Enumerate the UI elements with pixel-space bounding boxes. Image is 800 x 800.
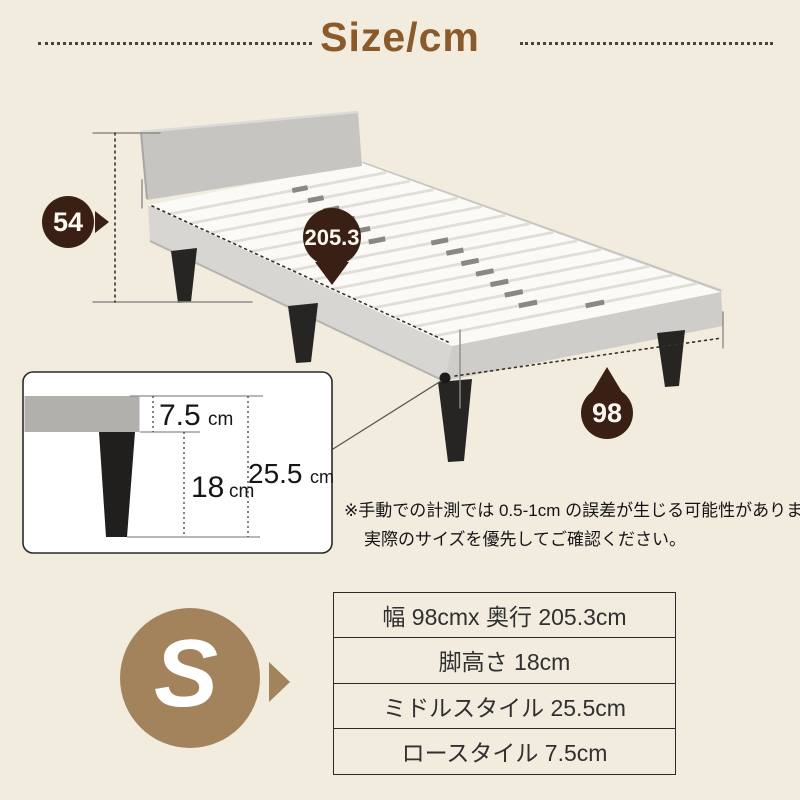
low-style-value: 7.5 xyxy=(159,399,201,432)
middle-style-value: 25.5 xyxy=(248,458,303,489)
badge-headboard-height: 54 xyxy=(42,196,109,248)
spec-row-low: ロースタイル 7.5cm xyxy=(334,729,675,774)
spec-row-size: 幅 98cmx 奥行 205.3cm xyxy=(334,593,675,638)
leg-callout-line xyxy=(333,381,441,449)
middle-style-unit: cm xyxy=(310,467,334,487)
size-badge-letter: S xyxy=(154,626,218,722)
note-line-1: ※手動での計測では 0.5-1cm の誤差が生じる可能性があります。 xyxy=(344,496,794,525)
width-value: 98 xyxy=(592,398,622,428)
size-badge-arrow-icon xyxy=(269,662,290,702)
spec-row-leg: 脚高さ 18cm xyxy=(334,638,675,683)
headboard-height-value: 54 xyxy=(53,207,83,237)
inset-frame-bar xyxy=(25,396,140,432)
arrow-right-icon xyxy=(95,211,109,233)
badge-width: 98 xyxy=(581,367,633,439)
bed-leg-foot-front xyxy=(438,379,472,462)
leg-detail-inset: 7.5 cm 18 cm 25.5 cm xyxy=(23,372,334,553)
leg-height-value: 18 xyxy=(191,471,224,504)
measurement-note: ※手動での計測では 0.5-1cm の誤差が生じる可能性があります。 実際のサイ… xyxy=(344,496,794,554)
size-badge: S xyxy=(120,608,260,748)
spec-row-middle: ミドルスタイル 25.5cm xyxy=(334,684,675,729)
size-infographic-page: Size/cm xyxy=(0,0,800,800)
leg-callout-dot xyxy=(440,373,451,384)
bed-leg-head-front xyxy=(171,248,197,303)
length-value: 205.3 xyxy=(304,225,359,250)
bed-leg-mid-front xyxy=(288,303,318,363)
note-line-2: 実際のサイズを優先してご確認ください。 xyxy=(344,525,794,554)
low-style-unit: cm xyxy=(208,409,233,430)
spec-table: 幅 98cmx 奥行 205.3cm 脚高さ 18cm ミドルスタイル 25.5… xyxy=(333,592,676,775)
bed-leg-foot-back xyxy=(657,330,685,387)
